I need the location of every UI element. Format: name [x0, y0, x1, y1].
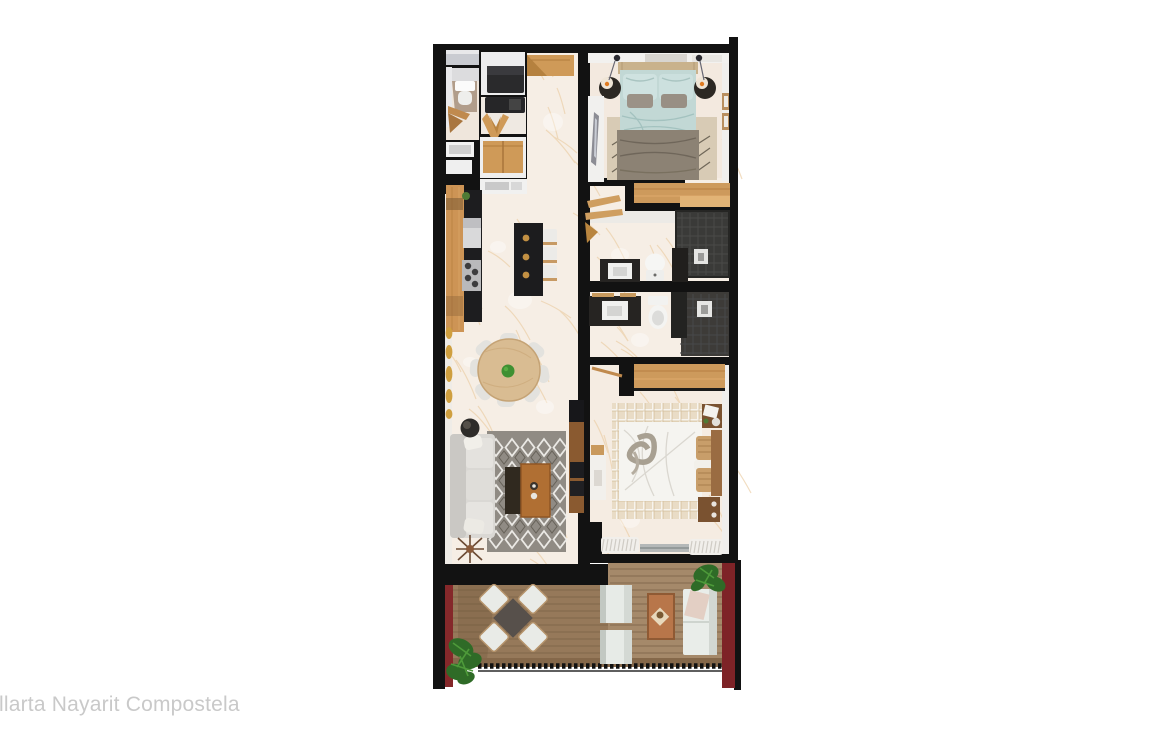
svg-text:llarta Nayarit Compostela: llarta Nayarit Compostela	[0, 693, 240, 716]
